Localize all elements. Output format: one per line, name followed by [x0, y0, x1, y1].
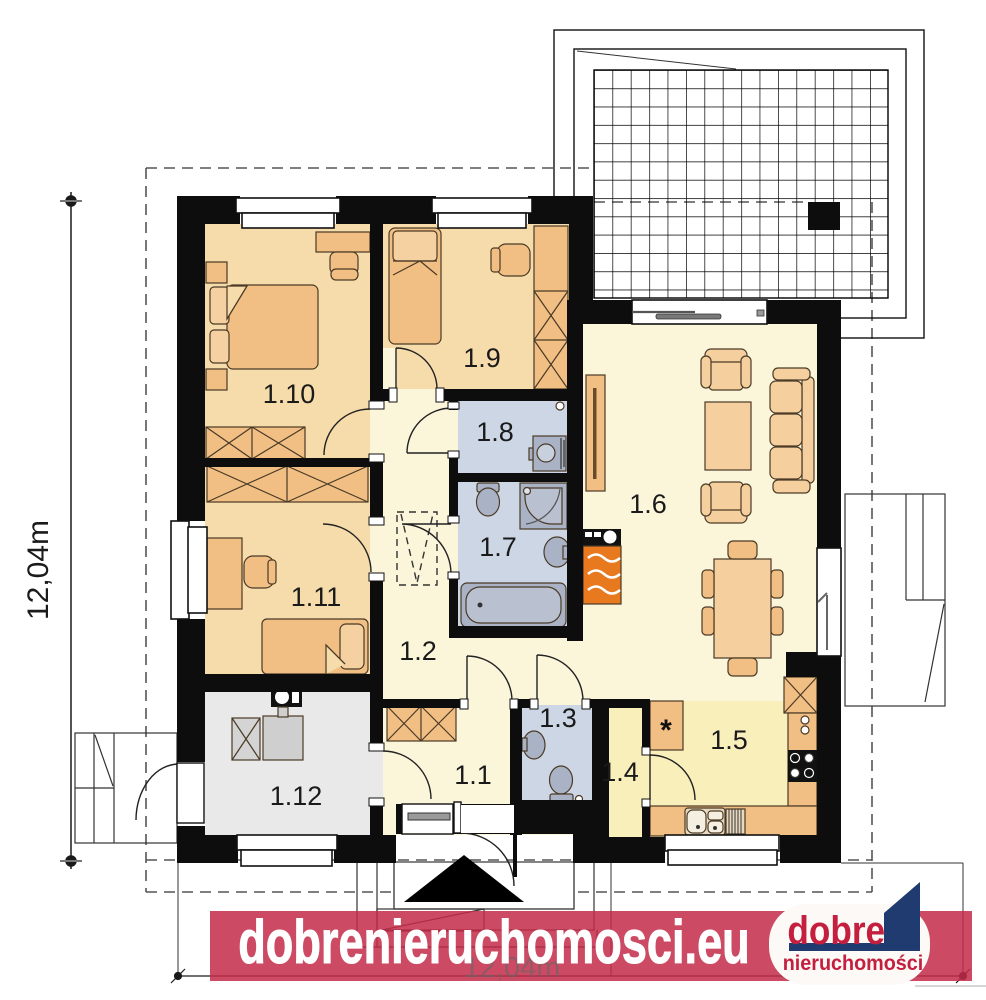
svg-text:*: *: [660, 714, 672, 747]
svg-text:1.6: 1.6: [629, 489, 667, 519]
svg-text:1.1: 1.1: [454, 760, 492, 790]
svg-text:1.3: 1.3: [539, 703, 577, 733]
svg-text:1.9: 1.9: [463, 343, 501, 373]
svg-text:12,04m: 12,04m: [22, 520, 55, 620]
svg-text:1.10: 1.10: [263, 379, 316, 409]
svg-text:1.8: 1.8: [476, 417, 514, 447]
svg-text:1.4: 1.4: [601, 757, 639, 787]
svg-text:dobrenieruchomosci.eu: dobrenieruchomosci.eu: [238, 908, 750, 976]
svg-text:1.5: 1.5: [710, 725, 748, 755]
svg-text:dobre: dobre: [787, 908, 885, 953]
svg-text:1.11: 1.11: [291, 582, 342, 612]
svg-text:1.7: 1.7: [479, 532, 517, 562]
svg-text:nieruchomości: nieruchomości: [783, 951, 924, 975]
svg-text:1.2: 1.2: [399, 636, 437, 666]
svg-text:1.12: 1.12: [270, 781, 323, 811]
